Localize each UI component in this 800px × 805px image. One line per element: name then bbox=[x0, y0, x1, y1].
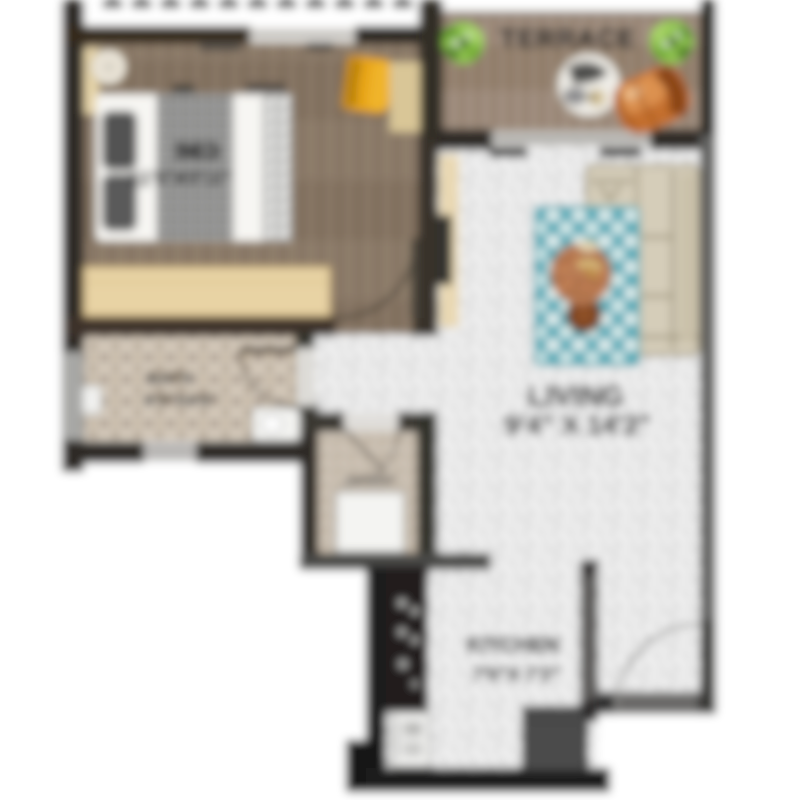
svg-text:7'0"X 7'2": 7'0"X 7'2" bbox=[472, 665, 559, 686]
svg-text:6'0"X4'6": 6'0"X4'6" bbox=[144, 391, 217, 410]
svg-text:11'5"X9'10": 11'5"X9'10" bbox=[130, 169, 232, 190]
svg-text:LIVING: LIVING bbox=[528, 381, 625, 413]
svg-text:KITCHEN: KITCHEN bbox=[466, 634, 559, 657]
svg-text:TERRACE: TERRACE bbox=[500, 23, 636, 53]
svg-text:BED: BED bbox=[175, 140, 219, 163]
svg-text:9'4" X 14'2": 9'4" X 14'2" bbox=[505, 410, 652, 440]
svg-text:2'6"X4'0": 2'6"X4'0" bbox=[345, 474, 397, 488]
svg-text:BATH: BATH bbox=[147, 369, 193, 388]
